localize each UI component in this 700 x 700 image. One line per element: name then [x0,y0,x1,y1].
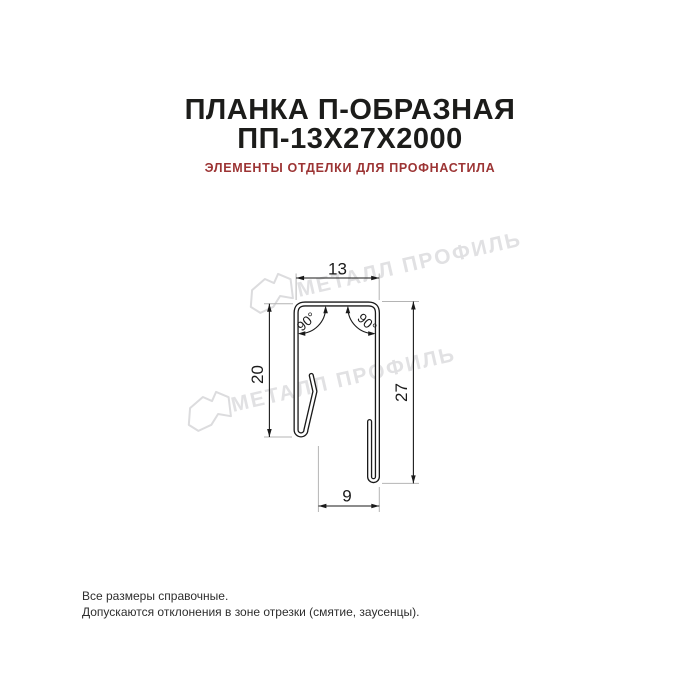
watermark-lower: МЕТАЛЛ ПРОФИЛЬ [183,343,458,433]
dim-right-height: 27 [382,302,419,484]
arrowhead-down-icon [411,475,416,483]
brand-logo-watermark-icon [183,389,234,432]
footer-note-2: Допускаются отклонения в зоне отрезки (с… [82,604,419,620]
arrowhead-up-icon [411,302,416,310]
dim-label-left-height: 20 [248,365,267,384]
arrowhead-right-icon [371,504,379,509]
footer-notes: Все размеры справочные. Допускаются откл… [82,588,419,620]
product-drawing-page: ПЛАНКА П-ОБРАЗНАЯ ПП-13Х27Х2000 ЭЛЕМЕНТЫ… [0,0,700,700]
arc-arrowhead-icon [323,306,328,314]
brand-logo-watermark-icon [245,271,296,314]
arrowhead-left-icon [318,504,326,509]
footer-note-1: Все размеры справочные. [82,588,419,604]
dim-left-height: 20 [248,304,293,437]
arrowhead-down-icon [267,429,272,437]
dim-label-right-height: 27 [392,383,411,402]
dim-label-top-width: 13 [328,260,347,279]
arc-arrowhead-icon [346,306,351,314]
dim-label-bottom-width: 9 [342,487,351,506]
